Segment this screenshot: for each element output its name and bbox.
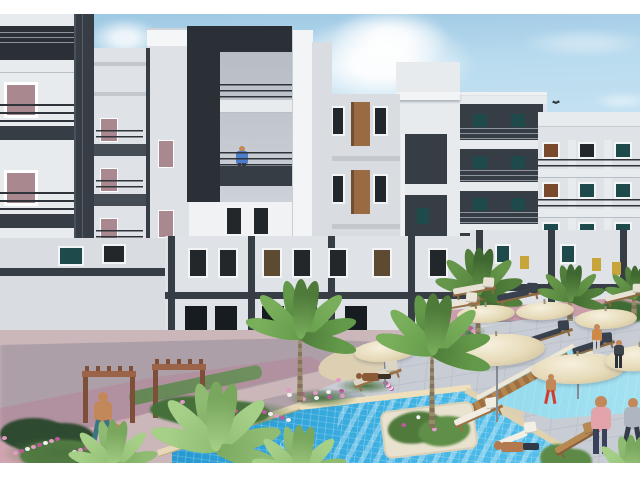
palm-tree xyxy=(372,298,492,442)
pergola-post xyxy=(83,377,88,423)
person-torso xyxy=(591,407,612,431)
lounger-backrest xyxy=(558,320,570,331)
lounger-leg xyxy=(560,451,565,458)
lounger-backrest xyxy=(482,277,493,287)
umbrella-finial xyxy=(543,299,545,304)
lounger-backrest xyxy=(523,421,536,433)
person-leg xyxy=(619,354,622,368)
flower xyxy=(286,418,291,422)
person-woman-orange xyxy=(590,324,605,354)
person-child-red-shorts xyxy=(544,374,559,404)
palm-frond xyxy=(425,293,442,355)
balcony-railing xyxy=(220,152,292,166)
pergola-beam xyxy=(82,371,136,377)
lounger-backrest xyxy=(633,284,640,293)
palm-trunk xyxy=(297,332,303,402)
person-leg xyxy=(551,389,556,404)
palm-trunk xyxy=(429,348,435,428)
palm-frond xyxy=(293,279,309,339)
flower xyxy=(13,451,18,455)
flower xyxy=(2,436,7,440)
flower xyxy=(31,445,36,449)
pergola-beam xyxy=(152,364,206,370)
person-torso xyxy=(501,442,524,452)
scene xyxy=(0,0,640,480)
flower xyxy=(25,447,30,451)
person-sunbather xyxy=(494,438,540,452)
person-leg xyxy=(615,354,618,368)
flower xyxy=(55,437,60,441)
person-legs xyxy=(523,443,540,450)
balcony-front-railing xyxy=(220,152,292,182)
person-head xyxy=(595,396,607,408)
lounger-backrest xyxy=(526,283,537,293)
flower xyxy=(37,443,42,447)
flower xyxy=(19,449,24,453)
flower xyxy=(43,441,48,445)
bottom-border xyxy=(0,463,640,480)
top-border xyxy=(0,0,640,14)
palm-frond xyxy=(207,381,226,451)
person-leg xyxy=(544,389,550,404)
rendered-photo xyxy=(0,0,640,480)
person-leg xyxy=(593,340,596,354)
umbrella-finial xyxy=(576,351,578,356)
person-leg xyxy=(597,340,600,354)
balcony-slab xyxy=(220,166,292,182)
flower xyxy=(49,439,54,443)
umbrella-finial xyxy=(495,331,497,336)
pergola-post xyxy=(130,377,135,423)
person-standing-dark xyxy=(612,340,626,368)
